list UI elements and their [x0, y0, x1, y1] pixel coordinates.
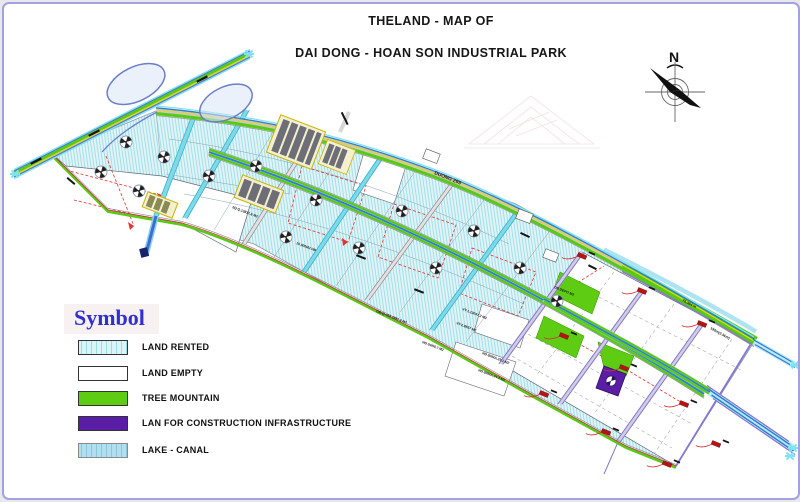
canal-stub-left — [139, 216, 156, 258]
page-subtitle: DAI DONG - HOAN SON INDUSTRIAL PARK — [4, 46, 800, 60]
legend-label: LAND RENTED — [142, 342, 209, 352]
legend-label: TREE MOUNTAIN — [142, 393, 220, 403]
infrastructure-swatch — [78, 416, 128, 431]
legend-title: Symbol — [64, 304, 159, 334]
land-rented-swatch — [78, 340, 128, 355]
compass-needle — [650, 68, 701, 108]
canal-east — [707, 386, 798, 460]
map-document: DUONG 295 75.384 m 190m(2.5km) 2Q-Q.1381… — [2, 2, 800, 500]
legend-label: LAN FOR CONSTRUCTION INFRASTRUCTURE — [142, 418, 351, 428]
legend-label: LAND EMPTY — [142, 368, 203, 378]
tree-mountain-swatch — [78, 391, 128, 406]
land-empty-swatch — [78, 366, 128, 381]
page-title: THELAND - MAP OF — [4, 14, 800, 28]
road-stub-north — [340, 112, 349, 132]
legend: Symbol LAND RENTED LAND EMPTY TREE MOUNT… — [64, 304, 364, 334]
watermark-sketch — [464, 96, 600, 148]
legend-label: LAKE - CANAL — [142, 445, 209, 455]
canal-northeast — [753, 340, 798, 369]
lake-canal-swatch — [78, 443, 128, 458]
